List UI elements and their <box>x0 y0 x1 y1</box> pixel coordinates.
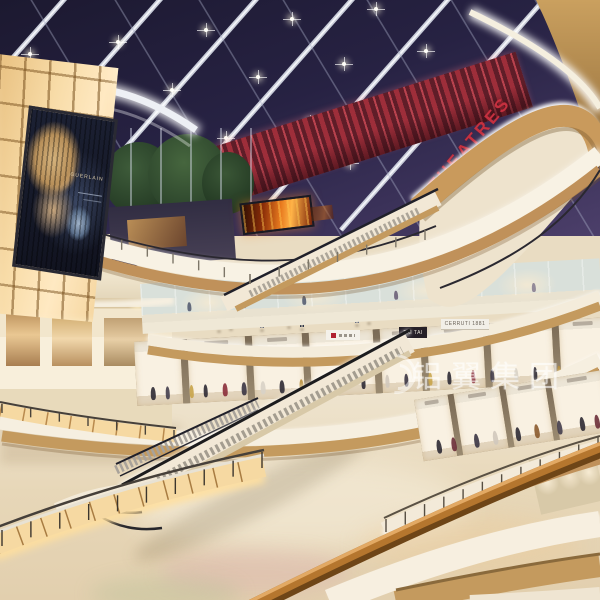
watermark-text: 铝翼集团 <box>412 352 568 396</box>
mall-atrium-rendering: THEATRES <box>0 0 600 600</box>
foreground-wood-handrail <box>0 0 600 600</box>
